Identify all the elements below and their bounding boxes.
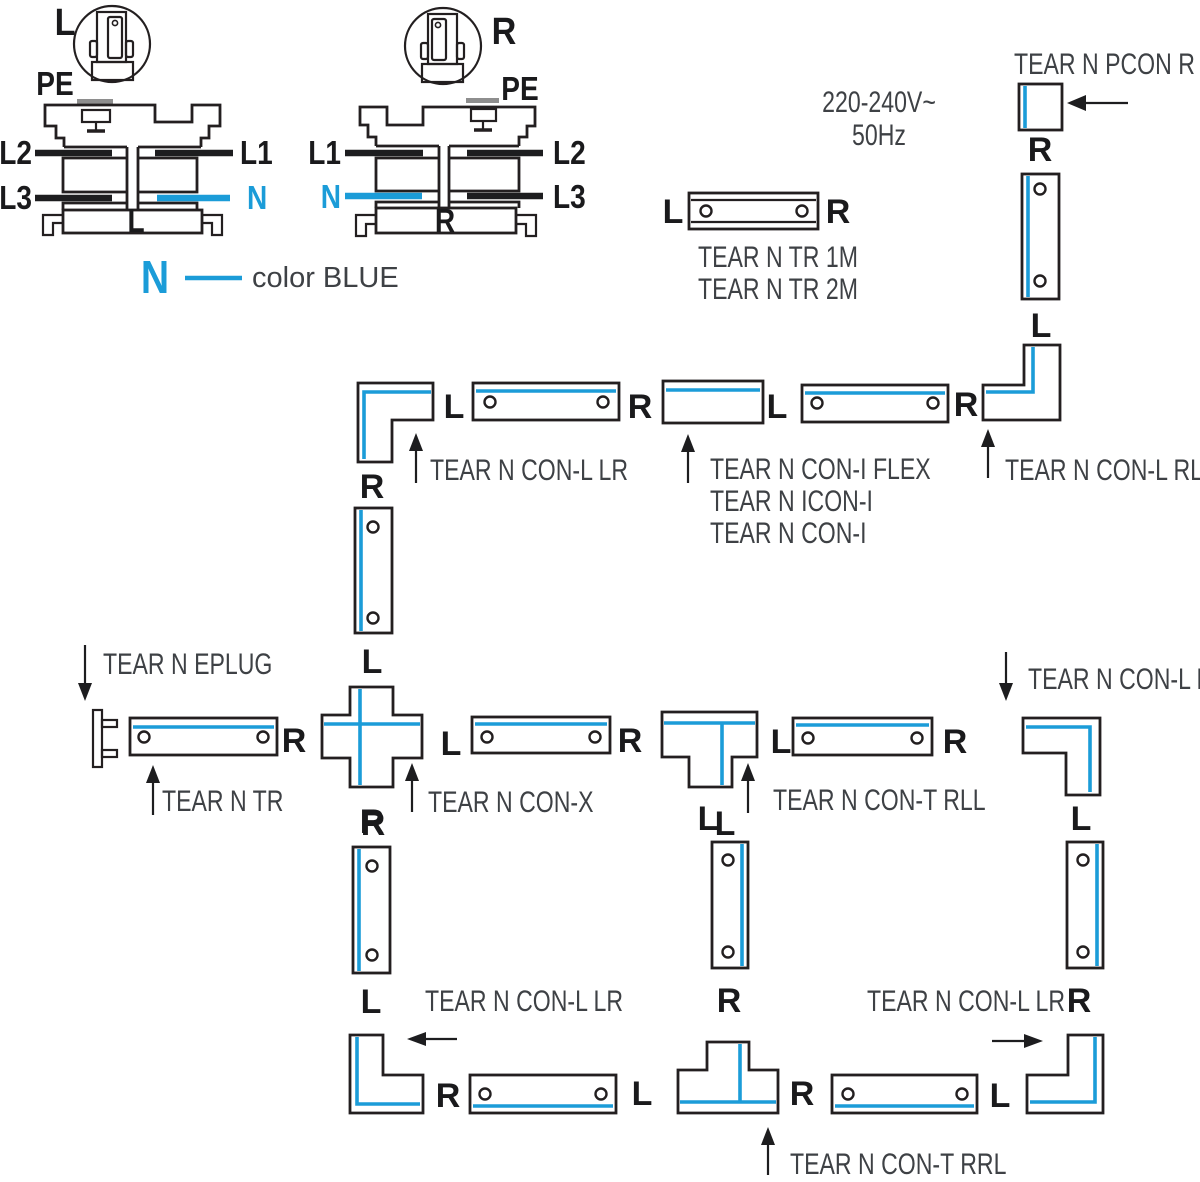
up-arrow xyxy=(146,765,160,783)
right-vertical-track: R TEAR N CON-L LR xyxy=(867,842,1103,1020)
port-letter: R xyxy=(717,982,742,1020)
terminal-label-l3: L3 xyxy=(553,179,586,216)
port-letter: L xyxy=(663,193,684,231)
cross-section-left: L PE L2 L1 xyxy=(0,0,273,239)
plug-label-left: L xyxy=(55,0,76,43)
con-t-rll-label: TEAR N CON-T RLL xyxy=(773,783,986,817)
pe-label-right: PE xyxy=(501,71,538,108)
power-connector-pcon: TEAR N PCON R R xyxy=(1014,47,1195,169)
port-letter: R xyxy=(1028,131,1053,169)
up-arrow xyxy=(761,1127,775,1145)
eplug-label: TEAR N EPLUG xyxy=(103,647,272,681)
voltage-text: 220-240V~ xyxy=(822,85,936,119)
con-l-rl-label: TEAR N CON-L RL xyxy=(1005,453,1200,487)
port-letter: R xyxy=(361,805,386,843)
terminal-label-n: N xyxy=(321,179,341,216)
base-label-right: R xyxy=(435,203,455,240)
track-system-diagram: L PE L2 L1 xyxy=(0,0,1200,1182)
port-letter: L xyxy=(361,983,382,1021)
port-letter: L xyxy=(771,723,792,761)
port-letter: R xyxy=(282,722,307,760)
plug-label-right: R xyxy=(492,9,517,52)
tr-1m-label: TEAR N TR 1M xyxy=(698,240,858,274)
terminal-label-n: N xyxy=(247,180,267,217)
pe-symbol-right xyxy=(466,98,499,130)
port-letter: R xyxy=(826,193,851,231)
frequency-text: 50Hz xyxy=(852,118,906,152)
port-letter: R xyxy=(1067,982,1092,1020)
port-letter: R xyxy=(618,722,643,760)
power-rating: 220-240V~ 50Hz xyxy=(822,85,936,152)
up-arrow xyxy=(741,763,755,781)
row2-track-1: R xyxy=(472,717,642,760)
tr-2m-label: TEAR N TR 2M xyxy=(698,272,858,306)
corner-con-l-lr-bottomleft: R xyxy=(350,1032,460,1115)
down-arrow xyxy=(999,683,1013,701)
right-arrow xyxy=(1024,1034,1043,1048)
track-tr-with-eplug: R TEAR N TR xyxy=(130,718,306,818)
pcon-arrow xyxy=(1067,95,1086,111)
track-tr-1m-2m: L R TEAR N TR 1M TEAR N TR 2M xyxy=(663,193,858,306)
port-letter: R xyxy=(436,1077,461,1115)
base-label-left: L xyxy=(127,203,144,240)
row1-track-2: R xyxy=(802,385,978,424)
pcon-label: TEAR N PCON R xyxy=(1014,47,1195,81)
icon-i-label: TEAR N ICON-I xyxy=(710,484,873,518)
port-letter: L xyxy=(444,388,465,426)
row3-track-1: L xyxy=(470,1075,652,1113)
legend-blue-neutral: N color BLUE xyxy=(141,252,399,304)
tr-label: TEAR N TR xyxy=(162,784,283,818)
port-letter: L xyxy=(441,725,462,763)
end-plug-eplug: TEAR N EPLUG xyxy=(78,645,272,767)
row2-track-2: L R xyxy=(771,718,968,761)
left-vertical-track-upper: L xyxy=(355,508,392,681)
port-letter: L xyxy=(362,643,383,681)
left-vertical-track-lower: R L TEAR N CON-L LR xyxy=(353,805,623,1021)
con-x-label: TEAR N CON-X xyxy=(428,785,594,819)
plug-detail-circle-right xyxy=(405,8,481,84)
up-arrow xyxy=(981,429,995,447)
legend-text: color BLUE xyxy=(252,262,399,294)
terminal-label-l3: L3 xyxy=(0,180,32,217)
port-letter: R xyxy=(360,468,385,506)
tee-con-t-rll: L TEAR N CON-T RLL xyxy=(662,712,986,838)
feed-vertical-track: L xyxy=(1022,174,1059,345)
port-letter: R xyxy=(790,1075,815,1113)
diagram-canvas: L PE L2 L1 xyxy=(0,0,1200,1182)
terminal-label-l1: L1 xyxy=(308,135,341,172)
port-letter: L xyxy=(767,388,788,426)
port-letter: R xyxy=(628,388,653,426)
up-arrow xyxy=(405,763,419,781)
con-l-lr-label: TEAR N CON-L LR xyxy=(430,453,628,487)
con-i-label: TEAR N CON-I xyxy=(710,516,867,550)
con-l-lr-label: TEAR N CON-L LR xyxy=(425,984,623,1018)
port-letter: L xyxy=(990,1077,1011,1115)
port-letter: L xyxy=(1031,307,1052,345)
legend-n-symbol: N xyxy=(141,252,169,304)
port-letter: R xyxy=(943,723,968,761)
port-letter: L xyxy=(715,805,736,843)
port-letter: L xyxy=(632,1075,653,1113)
con-l-lr-label: TEAR N CON-L LR xyxy=(867,984,1065,1018)
con-t-rrl-label: TEAR N CON-T RRL xyxy=(790,1147,1006,1181)
corner-con-l-rl: TEAR N CON-L RL xyxy=(981,345,1200,487)
con-l-lr-label: TEAR N CON-L LR xyxy=(1028,662,1200,696)
row3-track-2: L xyxy=(832,1075,1010,1115)
left-arrow xyxy=(407,1032,426,1046)
up-arrow xyxy=(681,434,695,452)
port-letter: L xyxy=(1071,800,1092,838)
connector-con-i: L TEAR N CON-I FLEX TEAR N ICON-I TEAR N… xyxy=(663,381,931,550)
terminal-label-l2: L2 xyxy=(553,135,586,172)
con-i-flex-label: TEAR N CON-I FLEX xyxy=(710,452,931,486)
row1-track-1: R xyxy=(473,383,652,426)
plug-detail-circle-left xyxy=(74,6,150,82)
down-arrow xyxy=(78,683,92,701)
middle-vertical-track: L R xyxy=(712,805,748,1020)
terminal-label-l1: L1 xyxy=(240,135,273,172)
tee-con-t-rrl: R TEAR N CON-T RRL xyxy=(678,1042,1006,1181)
cross-section-right: R PE L1 L2 xyxy=(308,8,585,240)
terminal-label-l2: L2 xyxy=(0,135,32,172)
corner-con-l-lr-midright: TEAR N CON-L LR L xyxy=(999,652,1200,838)
pe-label-left: PE xyxy=(36,66,73,103)
port-letter: R xyxy=(954,386,979,424)
up-arrow xyxy=(409,433,423,451)
